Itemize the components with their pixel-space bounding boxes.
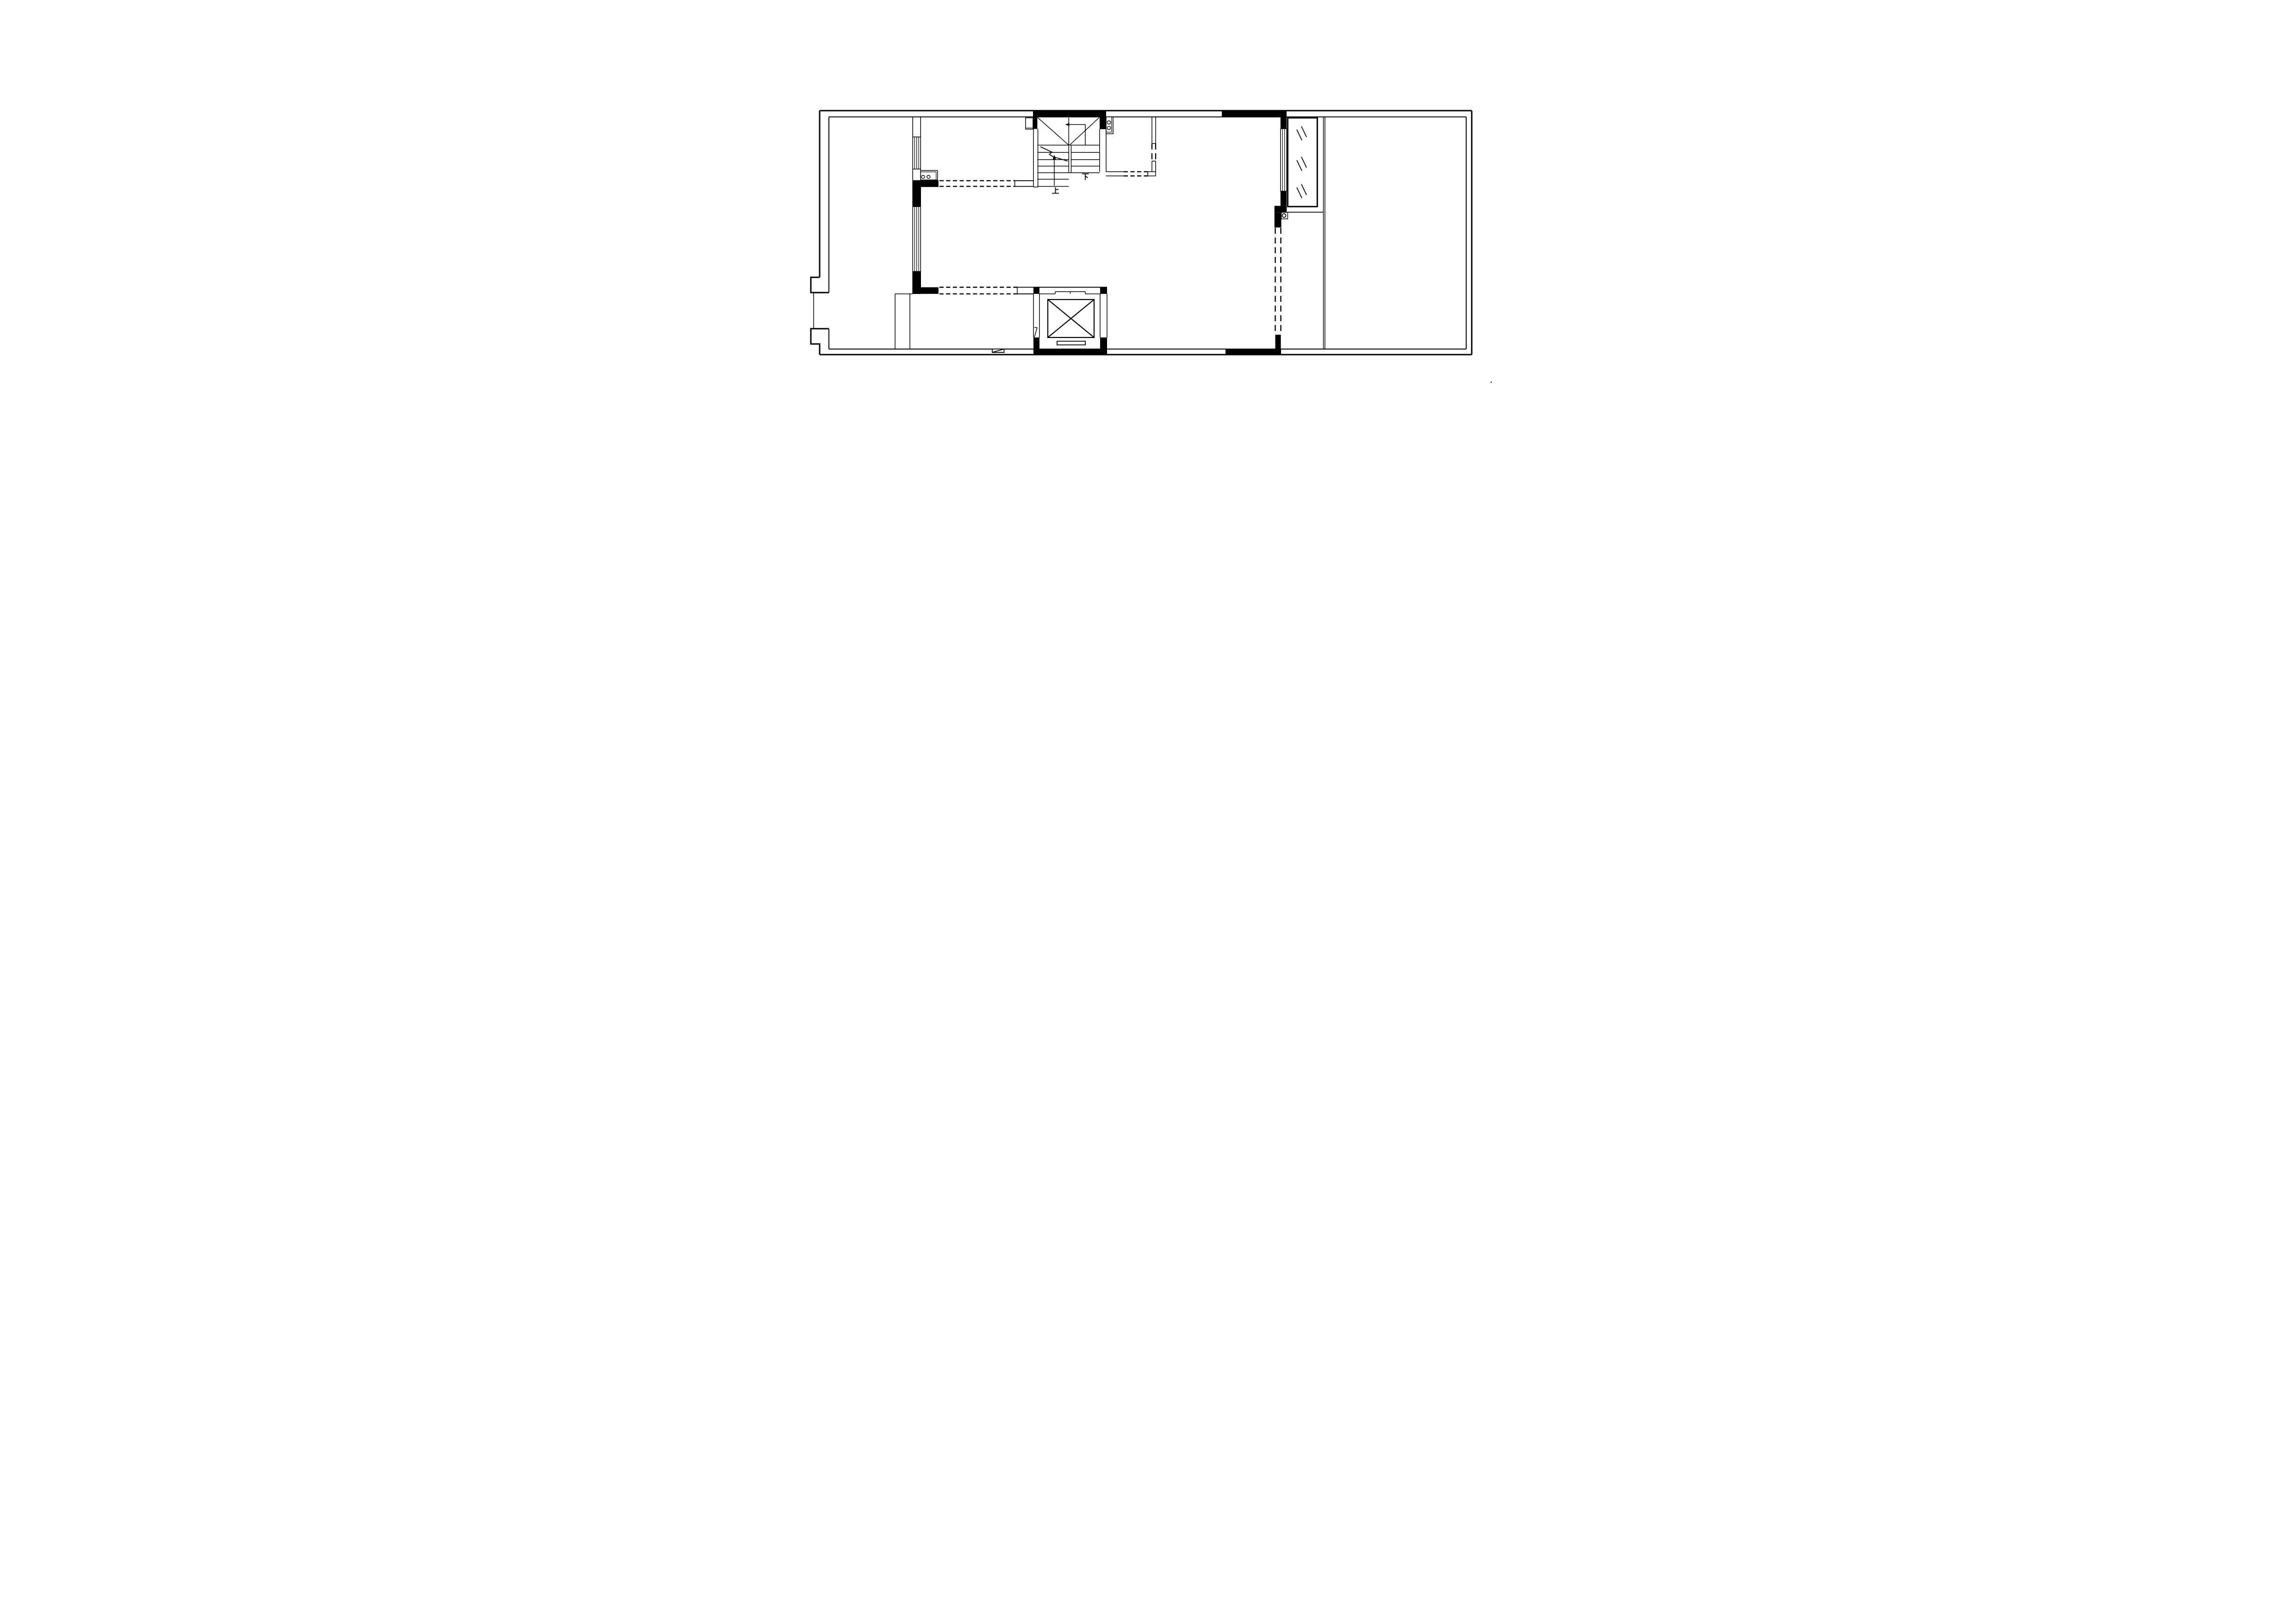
opening-solid-lines xyxy=(1017,287,1033,294)
window-pier-bottom xyxy=(1281,191,1287,206)
wall-pier-mid xyxy=(913,180,921,206)
window-panes xyxy=(1282,129,1285,191)
glazed-panel xyxy=(1288,118,1317,207)
staircase xyxy=(1026,117,1106,194)
floor-plan-canvas xyxy=(790,0,1506,506)
stair-wall-column-right xyxy=(1100,117,1106,129)
shaft-top-inner-with-door-recess xyxy=(1039,292,1100,294)
wall-pier-low xyxy=(913,271,921,294)
kitchen-counter-opening xyxy=(940,181,1033,186)
glyph-stroke xyxy=(1085,176,1088,178)
down-character-glyph xyxy=(1082,174,1089,181)
duct-box-rect xyxy=(1026,118,1033,130)
stair-wall-column-left xyxy=(1033,117,1037,129)
stray-dot xyxy=(1491,381,1492,383)
threshold-symbol xyxy=(992,349,1004,353)
window-upper xyxy=(913,137,921,169)
glass-tick-pair xyxy=(1297,184,1307,198)
stair-hall-left-wall xyxy=(1033,129,1038,187)
down-arrow-shaft xyxy=(1068,125,1085,145)
vertical-dashed-opening xyxy=(1276,228,1281,335)
room-wall-dashed xyxy=(1152,144,1156,161)
shaft-wall-right xyxy=(1100,294,1107,337)
room-wall-upper xyxy=(1152,117,1156,144)
car-cross xyxy=(1048,300,1094,337)
partition-sides xyxy=(895,294,910,349)
down-arrow-head xyxy=(1065,123,1070,126)
up-character-glyph xyxy=(1052,187,1059,194)
doorway-dashed-lines xyxy=(1124,172,1148,176)
left-notch-lower xyxy=(811,329,829,355)
shaft-column xyxy=(1100,287,1107,294)
left-flight-treads xyxy=(1037,152,1069,186)
window-pier-top xyxy=(1281,117,1287,129)
flight-divider xyxy=(1069,145,1071,173)
right-room-divider-wall xyxy=(1324,117,1325,350)
window-frame xyxy=(1281,129,1287,191)
top-wall-solid-segment-stair xyxy=(1033,111,1106,117)
shaft-column xyxy=(1100,337,1107,355)
elevator xyxy=(1033,287,1107,355)
round-column xyxy=(1282,212,1288,219)
shaft-column xyxy=(1033,337,1039,355)
stove-body xyxy=(1106,117,1113,134)
top-wall-solid-segment-right xyxy=(1222,111,1287,117)
window-panes xyxy=(915,137,919,169)
right-wall-window xyxy=(1281,129,1287,191)
lower-left-opening xyxy=(940,287,1033,294)
wall-foot-stub xyxy=(921,287,939,294)
duct-box xyxy=(1026,118,1033,130)
dashed-counter-lines xyxy=(940,181,1015,186)
kitchen-sink xyxy=(921,170,938,180)
door-leaf-symbol xyxy=(1034,328,1037,338)
small-room-walls xyxy=(1106,117,1156,176)
corner-pier xyxy=(1275,206,1287,212)
glass-tick-pair xyxy=(1297,126,1307,140)
doorway-corner-lines xyxy=(1148,172,1156,176)
left-notch-upper xyxy=(811,277,829,293)
stairs-down-arrow xyxy=(1065,123,1086,145)
left-room-lower-partition xyxy=(895,294,913,349)
stair-hall-right-wall xyxy=(1100,129,1106,172)
bottom-wall-solid-segment-elevator xyxy=(1033,349,1107,355)
room-wall-lower xyxy=(1152,161,1156,176)
dashed-opening-lines xyxy=(940,287,1017,294)
glass-tick-pair xyxy=(1297,157,1307,171)
bottom-pier xyxy=(1276,335,1281,349)
right-flight-treads xyxy=(1071,152,1100,166)
doorway-solid-lines xyxy=(1106,172,1124,176)
stove-unit xyxy=(1106,117,1113,134)
left-interior-wall xyxy=(913,117,939,294)
landing-diagonals xyxy=(1038,118,1099,145)
elevator-door-slot xyxy=(1057,341,1085,345)
shaft-column xyxy=(1033,287,1039,294)
drawing-sheet: 上 下 xyxy=(790,0,1506,506)
right-window-assembly xyxy=(1275,117,1324,349)
elevator-car xyxy=(1048,300,1094,337)
counter-solid-lines xyxy=(1015,181,1033,186)
glazed-panel-frame xyxy=(1288,118,1317,207)
window-panes xyxy=(915,206,919,271)
glass-ticks xyxy=(1297,126,1307,198)
bottom-wall-solid-segment-right xyxy=(1226,349,1281,355)
corner-pier-arm xyxy=(1275,212,1282,228)
glyph-stroke xyxy=(1056,189,1059,190)
counter-wall-stub xyxy=(921,180,939,187)
window-lower xyxy=(913,206,921,271)
